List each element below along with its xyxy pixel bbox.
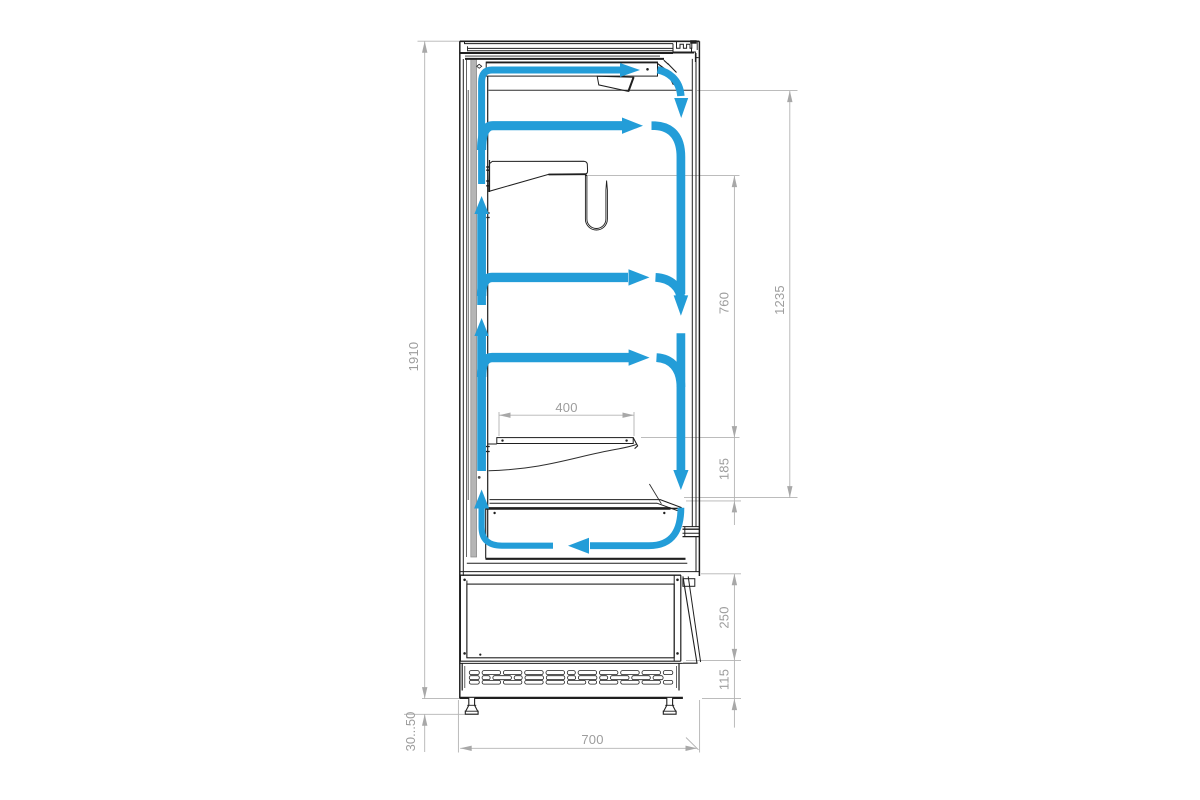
svg-text:115: 115 <box>716 669 731 690</box>
svg-text:760: 760 <box>716 292 731 314</box>
svg-text:1235: 1235 <box>772 285 787 315</box>
svg-text:250: 250 <box>716 606 731 628</box>
svg-text:1910: 1910 <box>406 342 421 372</box>
svg-text:700: 700 <box>581 732 603 747</box>
svg-text:30...50: 30...50 <box>403 712 418 752</box>
svg-text:185: 185 <box>716 458 731 480</box>
svg-text:400: 400 <box>555 400 577 415</box>
